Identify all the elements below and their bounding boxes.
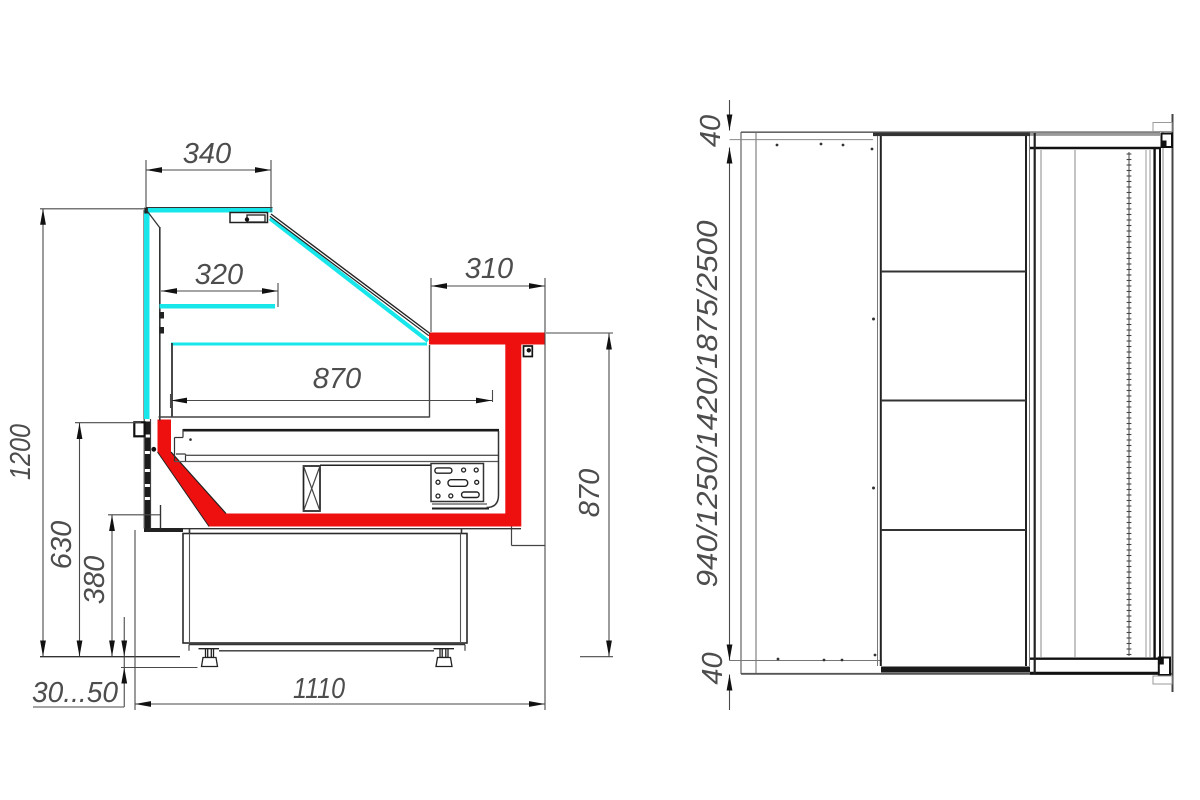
svg-text:1200: 1200 xyxy=(5,424,37,480)
svg-text:870: 870 xyxy=(313,363,361,395)
svg-text:40: 40 xyxy=(695,115,727,147)
svg-text:40: 40 xyxy=(697,652,729,684)
svg-text:630: 630 xyxy=(46,521,78,569)
svg-text:940/1250/1420/1875/2500: 940/1250/1420/1875/2500 xyxy=(692,221,724,588)
svg-text:340: 340 xyxy=(183,138,231,170)
svg-text:320: 320 xyxy=(195,259,243,291)
svg-text:380: 380 xyxy=(79,556,111,604)
svg-text:30...50: 30...50 xyxy=(32,677,118,709)
svg-text:1110: 1110 xyxy=(293,673,345,705)
svg-text:870: 870 xyxy=(574,469,606,517)
svg-text:310: 310 xyxy=(465,253,513,285)
